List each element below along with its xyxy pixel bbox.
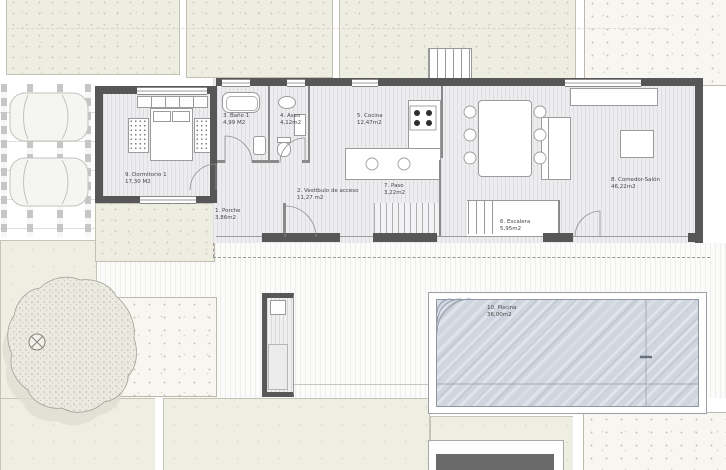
sofa-back-line	[548, 118, 549, 179]
sofa	[541, 117, 571, 180]
tv-unit	[570, 88, 658, 106]
wall-kitchen-living	[441, 86, 443, 158]
floor-plan: 9. Dormitorio 1 17,30 M2 3. Baño 1 4,99 …	[0, 0, 726, 470]
dining-table	[478, 100, 532, 177]
toilet-bath	[253, 136, 266, 155]
room-label-bano: 3. Baño 1 4,99 M2	[223, 113, 249, 126]
wall-bedroom-left	[95, 86, 103, 203]
wall-bath-bottom-b	[252, 160, 269, 163]
wall-aseo-bottom-b	[302, 160, 310, 163]
room-label-porche: 1. Porche 3,86m2	[215, 208, 241, 221]
room-label-vestibulo: 2. Vestíbulo de acceso 11,27 m2	[297, 188, 359, 201]
window-bedroom-top	[137, 87, 207, 95]
headboard-shelf	[137, 96, 208, 108]
path-strip-1	[155, 398, 163, 470]
plot-bottom-4	[583, 412, 726, 470]
carport-slat	[57, 84, 63, 237]
carport-slat	[1, 84, 7, 237]
plot-bottom-2	[163, 398, 430, 470]
room-label-escalera: 6. Escalera 5,95m2	[500, 219, 530, 232]
carport-slat	[85, 84, 91, 237]
bathtub	[222, 92, 260, 113]
room-label-paso: 7. Paso 3,22m2	[384, 183, 405, 196]
roof-overhang-dashed-corner	[213, 243, 215, 257]
wall-aseo-bottom-a	[270, 160, 279, 163]
exterior-stairs-top	[428, 48, 472, 81]
bathtub-inner	[226, 96, 258, 111]
plot-top-4	[584, 0, 726, 86]
carport-slat	[27, 84, 33, 237]
wardrobe-left	[128, 118, 149, 153]
room-label-cocina: 5. Cocina 12,47m2	[357, 113, 383, 126]
plot-left-mid	[0, 240, 97, 399]
window-aseo	[287, 79, 305, 87]
window-kitchen	[352, 79, 378, 87]
wall-bath-aseo	[268, 86, 270, 163]
path-strip-2	[573, 416, 583, 470]
coffee-table	[620, 130, 654, 158]
stair-treads	[468, 201, 500, 234]
deck-edge-line	[294, 384, 428, 385]
room-label-dormitorio: 9. Dormitorio 1 17,30 M2	[125, 172, 167, 185]
sink-aseo	[278, 96, 296, 109]
utility-lower-unit	[268, 344, 288, 390]
roof-overhang-dashed	[213, 257, 710, 259]
utility-equipment	[270, 300, 286, 315]
wall-south-pier-4	[688, 233, 703, 242]
room-label-comedor: 8. Comedor-Salón 46,22m2	[611, 177, 660, 190]
gravel-patch-bedroom	[95, 203, 215, 262]
wall-aseo-kitchen	[308, 86, 310, 163]
wall-south-pier-1	[262, 233, 340, 242]
wall-bath-bottom-a	[217, 160, 225, 163]
wall-east	[695, 78, 703, 243]
window-bedroom-bottom	[140, 196, 196, 204]
wall-south-pier-2	[373, 233, 437, 242]
stair-wall	[558, 200, 560, 235]
kitchen-island	[345, 148, 441, 180]
wardrobe-right	[194, 118, 211, 153]
pool-water	[436, 299, 699, 407]
neighbour-building-wall	[436, 454, 554, 470]
wall-bedroom-right	[210, 86, 217, 203]
room-label-aseo: 4. Aseo 4,12m2	[280, 113, 301, 126]
plot-bottom-1	[0, 398, 157, 470]
gravel-square	[96, 297, 217, 397]
wall-south-pier-3	[543, 233, 573, 242]
plot-top-2	[186, 0, 333, 78]
wall-hall-left	[283, 203, 286, 237]
room-label-piscina: 10. Piscina 36,00m2	[487, 305, 517, 318]
carport	[0, 84, 95, 237]
plot-top-1	[6, 0, 180, 75]
pillow	[172, 111, 190, 122]
window-bath	[222, 79, 250, 87]
pillow	[153, 111, 171, 122]
plot-boundary-dashed	[6, 28, 666, 30]
window-living	[565, 79, 641, 87]
wall-hall-right	[439, 160, 441, 237]
paso-grate	[374, 203, 438, 235]
toilet-aseo	[277, 142, 291, 157]
